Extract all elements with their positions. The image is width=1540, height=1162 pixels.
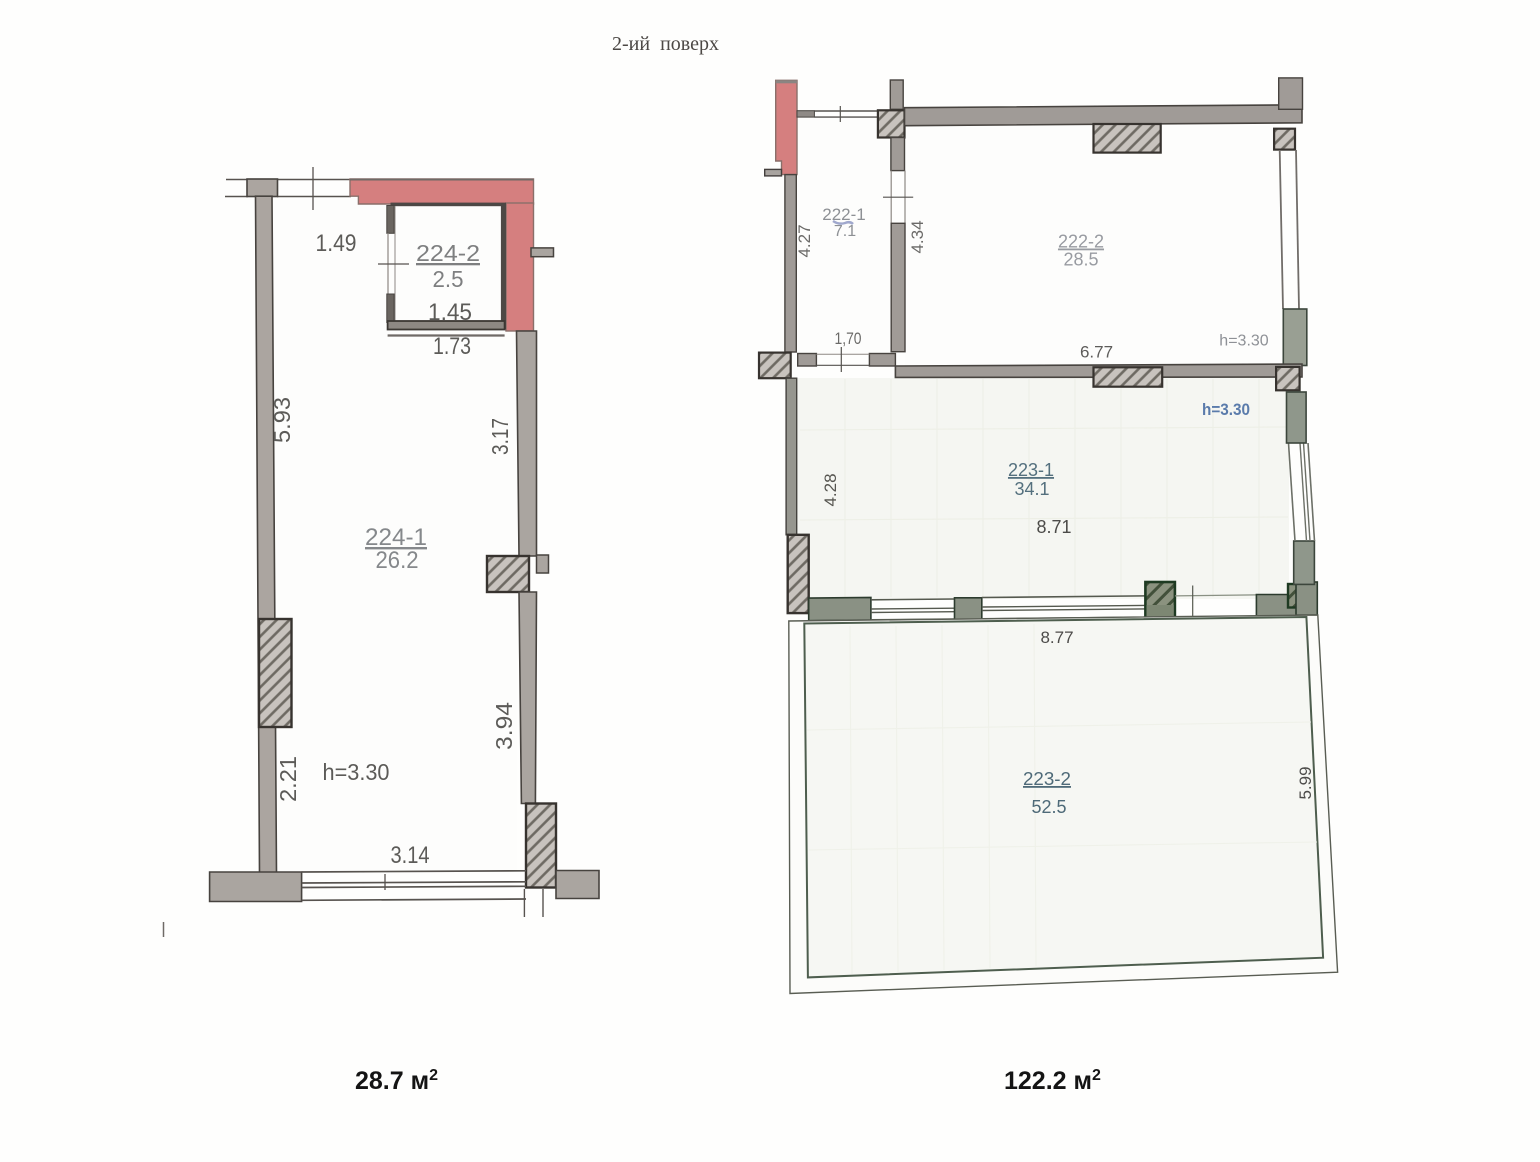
svg-text:122.2 м2: 122.2 м2 bbox=[1004, 1067, 1101, 1095]
svg-text:2.21: 2.21 bbox=[275, 756, 301, 802]
svg-text:7.1: 7.1 bbox=[834, 223, 856, 240]
svg-text:5.99: 5.99 bbox=[1296, 766, 1315, 799]
svg-text:222-1: 222-1 bbox=[822, 205, 865, 224]
svg-text:52.5: 52.5 bbox=[1031, 797, 1066, 817]
svg-text:1.49: 1.49 bbox=[316, 230, 357, 257]
svg-text:h=3.30: h=3.30 bbox=[1202, 400, 1250, 419]
svg-text:3.94: 3.94 bbox=[491, 702, 517, 750]
svg-text:26.2: 26.2 bbox=[376, 547, 419, 574]
svg-text:2.5: 2.5 bbox=[433, 266, 464, 292]
svg-text:8.77: 8.77 bbox=[1040, 628, 1073, 647]
svg-text:h=3.30: h=3.30 bbox=[323, 759, 390, 785]
svg-text:28.5: 28.5 bbox=[1063, 250, 1098, 270]
svg-text:6.77: 6.77 bbox=[1080, 343, 1113, 362]
svg-text:28.7 м2: 28.7 м2 bbox=[355, 1067, 438, 1095]
svg-text:8.71: 8.71 bbox=[1036, 517, 1071, 537]
svg-text:223-1: 223-1 bbox=[1008, 460, 1054, 480]
svg-text:3.17: 3.17 bbox=[487, 418, 513, 455]
svg-text:3.14: 3.14 bbox=[391, 842, 430, 869]
svg-text:223-2: 223-2 bbox=[1023, 769, 1071, 789]
svg-text:5.93: 5.93 bbox=[269, 397, 295, 443]
svg-text:4.28: 4.28 bbox=[821, 473, 840, 506]
svg-text:2-ий поверх: 2-ий поверх bbox=[612, 33, 719, 55]
svg-text:34.1: 34.1 bbox=[1014, 479, 1049, 499]
svg-text:4.27: 4.27 bbox=[795, 224, 814, 257]
svg-text:4.34: 4.34 bbox=[908, 220, 927, 253]
svg-text:224-2: 224-2 bbox=[416, 240, 480, 266]
svg-text:h=3.30: h=3.30 bbox=[1219, 333, 1268, 350]
svg-text:1,70: 1,70 bbox=[835, 329, 862, 348]
svg-text:1.73: 1.73 bbox=[433, 333, 471, 360]
svg-text:222-2: 222-2 bbox=[1058, 232, 1104, 252]
svg-text:1.45: 1.45 bbox=[428, 299, 472, 326]
